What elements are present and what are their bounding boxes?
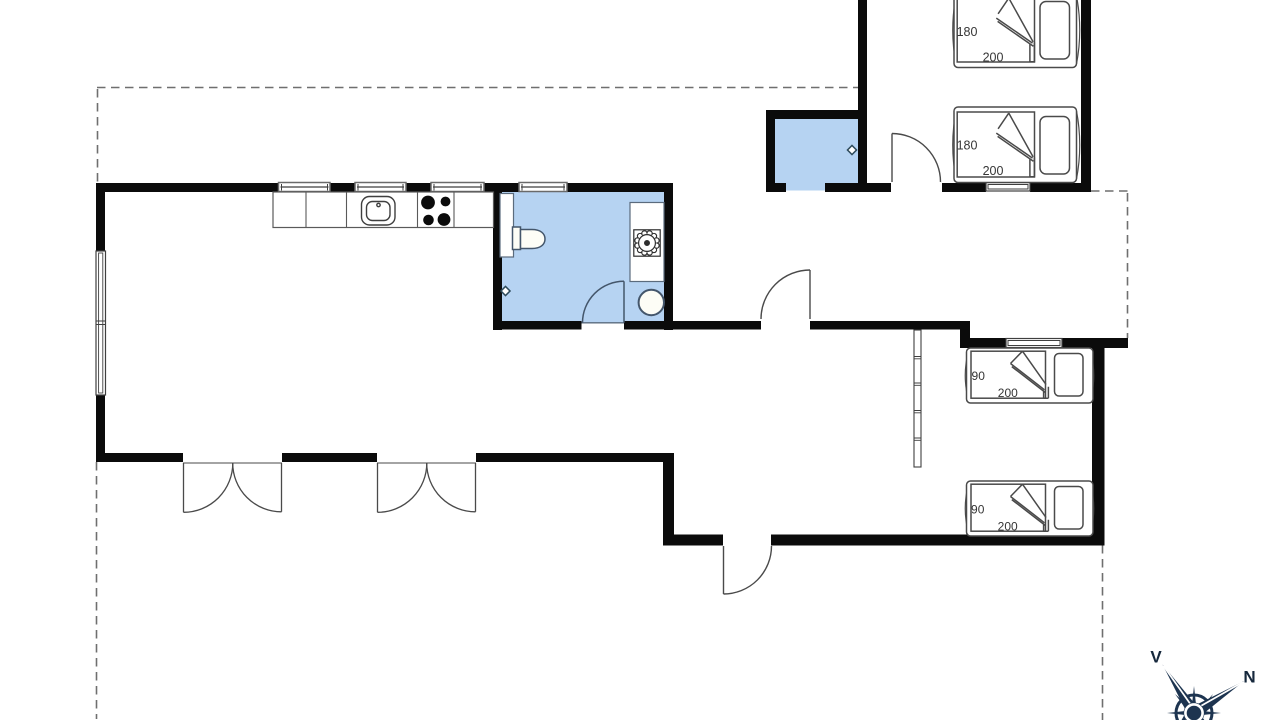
svg-text:N: N (1243, 668, 1255, 687)
svg-text:200: 200 (983, 51, 1004, 65)
svg-text:200: 200 (998, 386, 1018, 400)
svg-text:180: 180 (957, 25, 978, 39)
svg-text:90: 90 (972, 369, 986, 383)
svg-text:200: 200 (998, 519, 1018, 533)
svg-text:200: 200 (983, 164, 1004, 178)
svg-text:90: 90 (971, 503, 985, 517)
svg-text:V: V (1150, 648, 1162, 667)
svg-text:180: 180 (957, 139, 978, 153)
